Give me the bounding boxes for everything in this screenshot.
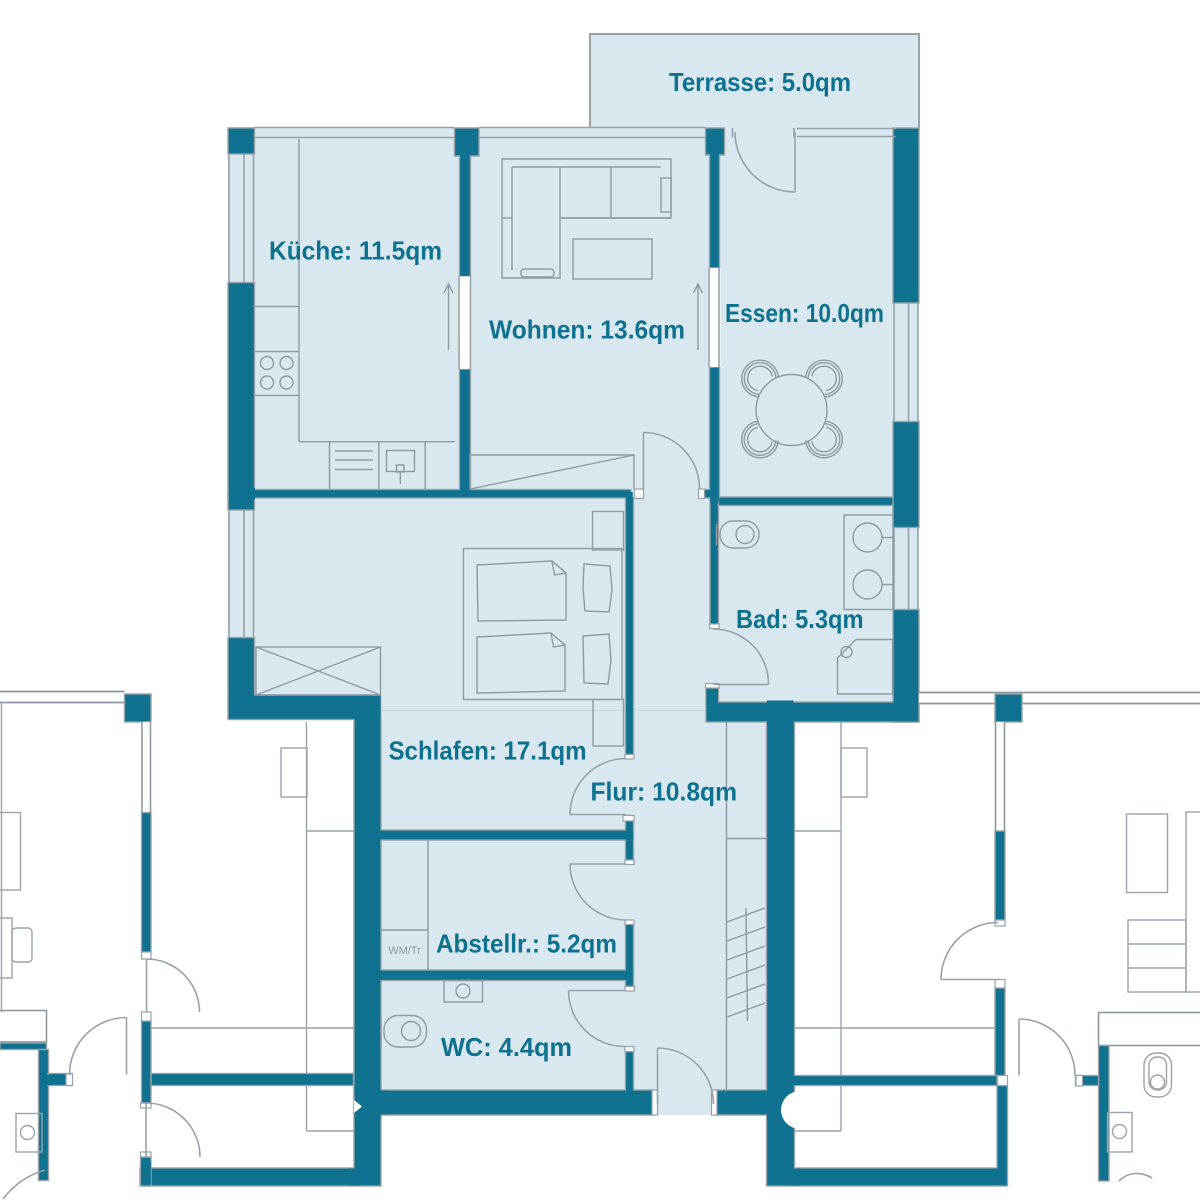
svg-text:WM/Tr: WM/Tr — [388, 945, 421, 957]
svg-text:Essen: 10.0qm: Essen: 10.0qm — [725, 298, 884, 328]
svg-text:Flur: 10.8qm: Flur: 10.8qm — [591, 777, 738, 807]
svg-text:Abstellr.: 5.2qm: Abstellr.: 5.2qm — [436, 929, 617, 959]
svg-text:WC: 4.4qm: WC: 4.4qm — [441, 1032, 572, 1062]
svg-text:Bad: 5.3qm: Bad: 5.3qm — [736, 604, 864, 634]
svg-text:Wohnen: 13.6qm: Wohnen: 13.6qm — [489, 315, 685, 345]
svg-text:Küche: 11.5qm: Küche: 11.5qm — [269, 236, 442, 266]
svg-text:Schlafen: 17.1qm: Schlafen: 17.1qm — [389, 736, 587, 766]
svg-text:Terrasse: 5.0qm: Terrasse: 5.0qm — [669, 67, 851, 97]
